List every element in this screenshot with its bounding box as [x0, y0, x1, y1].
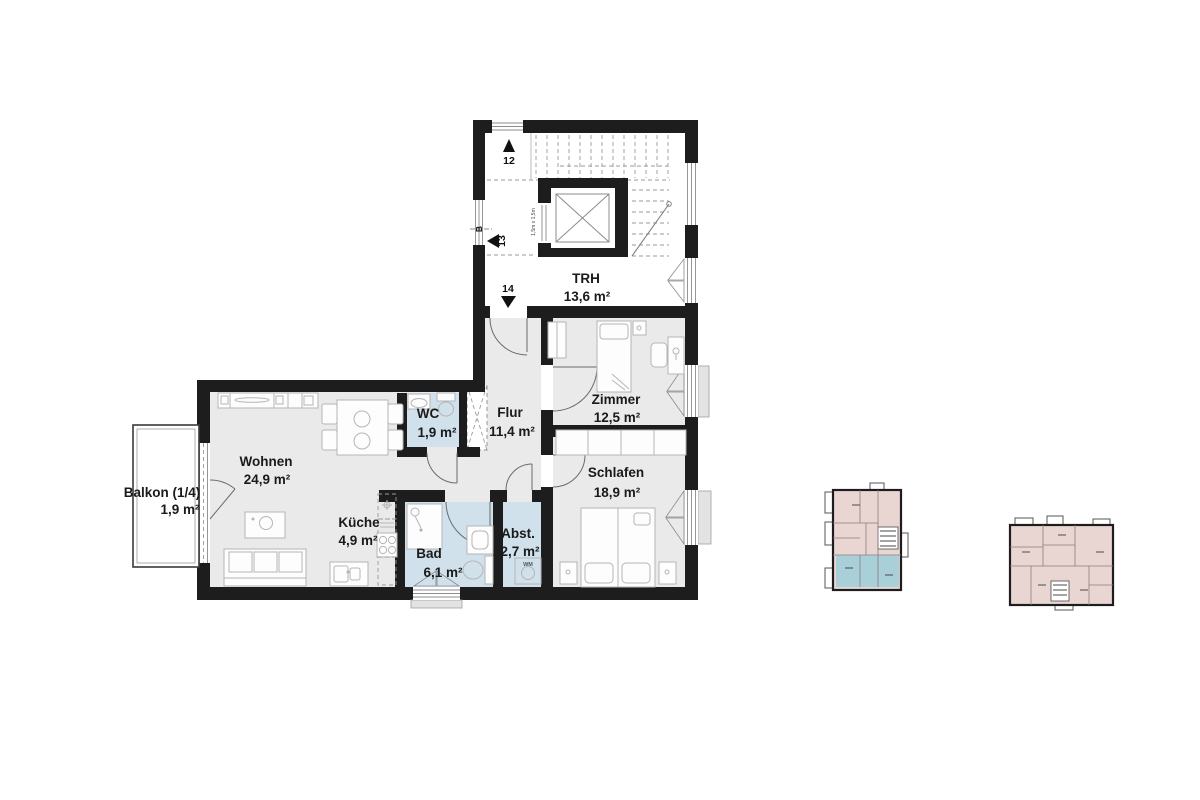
window-stairwell-top [492, 120, 523, 133]
section-label: B [474, 226, 484, 232]
area-balkon: 1,9 m² [160, 502, 200, 517]
area-bad: 6,1 m² [423, 565, 463, 580]
stair-number-13: 13 [496, 235, 508, 247]
label-wc: WC [417, 406, 440, 421]
label-zimmer: Zimmer [592, 392, 642, 407]
label-bad: Bad [416, 546, 442, 561]
label-trh: TRH [572, 271, 600, 286]
label-schlafen: Schlafen [588, 465, 644, 480]
window-stairs-right [685, 163, 698, 225]
elevator-size-label: 1,5m x 1,5m [531, 208, 537, 236]
area-abst: 2,7 m² [500, 544, 540, 559]
area-schlafen: 18,9 m² [594, 485, 641, 500]
stair-number-12: 12 [503, 155, 515, 167]
label-flur: Flur [497, 405, 523, 420]
area-trh: 13,6 m² [564, 289, 611, 304]
area-wohnen: 24,9 m² [244, 472, 291, 487]
keyplan-b [1010, 516, 1113, 610]
area-zimmer: 12,5 m² [594, 410, 641, 425]
stair-number-14: 14 [502, 283, 514, 295]
area-flur: 11,4 m² [489, 424, 535, 439]
elevator [538, 178, 628, 257]
floorplan-drawing: WM 12 13 14 B 1,5m x 1,5m [0, 0, 1200, 800]
installation-shaft [467, 385, 487, 450]
floorplan-page: WM 12 13 14 B 1,5m x 1,5m [0, 0, 1200, 800]
label-abst: Abst. [501, 526, 535, 541]
keyplan-a [825, 483, 908, 590]
label-kueche: Küche [338, 515, 380, 530]
window-landing-left [473, 200, 485, 245]
area-kueche: 4,9 m² [338, 533, 378, 548]
label-wohnen: Wohnen [240, 454, 293, 469]
washing-machine-label: WM [523, 562, 533, 568]
area-wc: 1,9 m² [417, 425, 457, 440]
keyplan-a-highlight-unit [836, 555, 899, 587]
label-balkon: Balkon (1/4) [124, 485, 201, 500]
